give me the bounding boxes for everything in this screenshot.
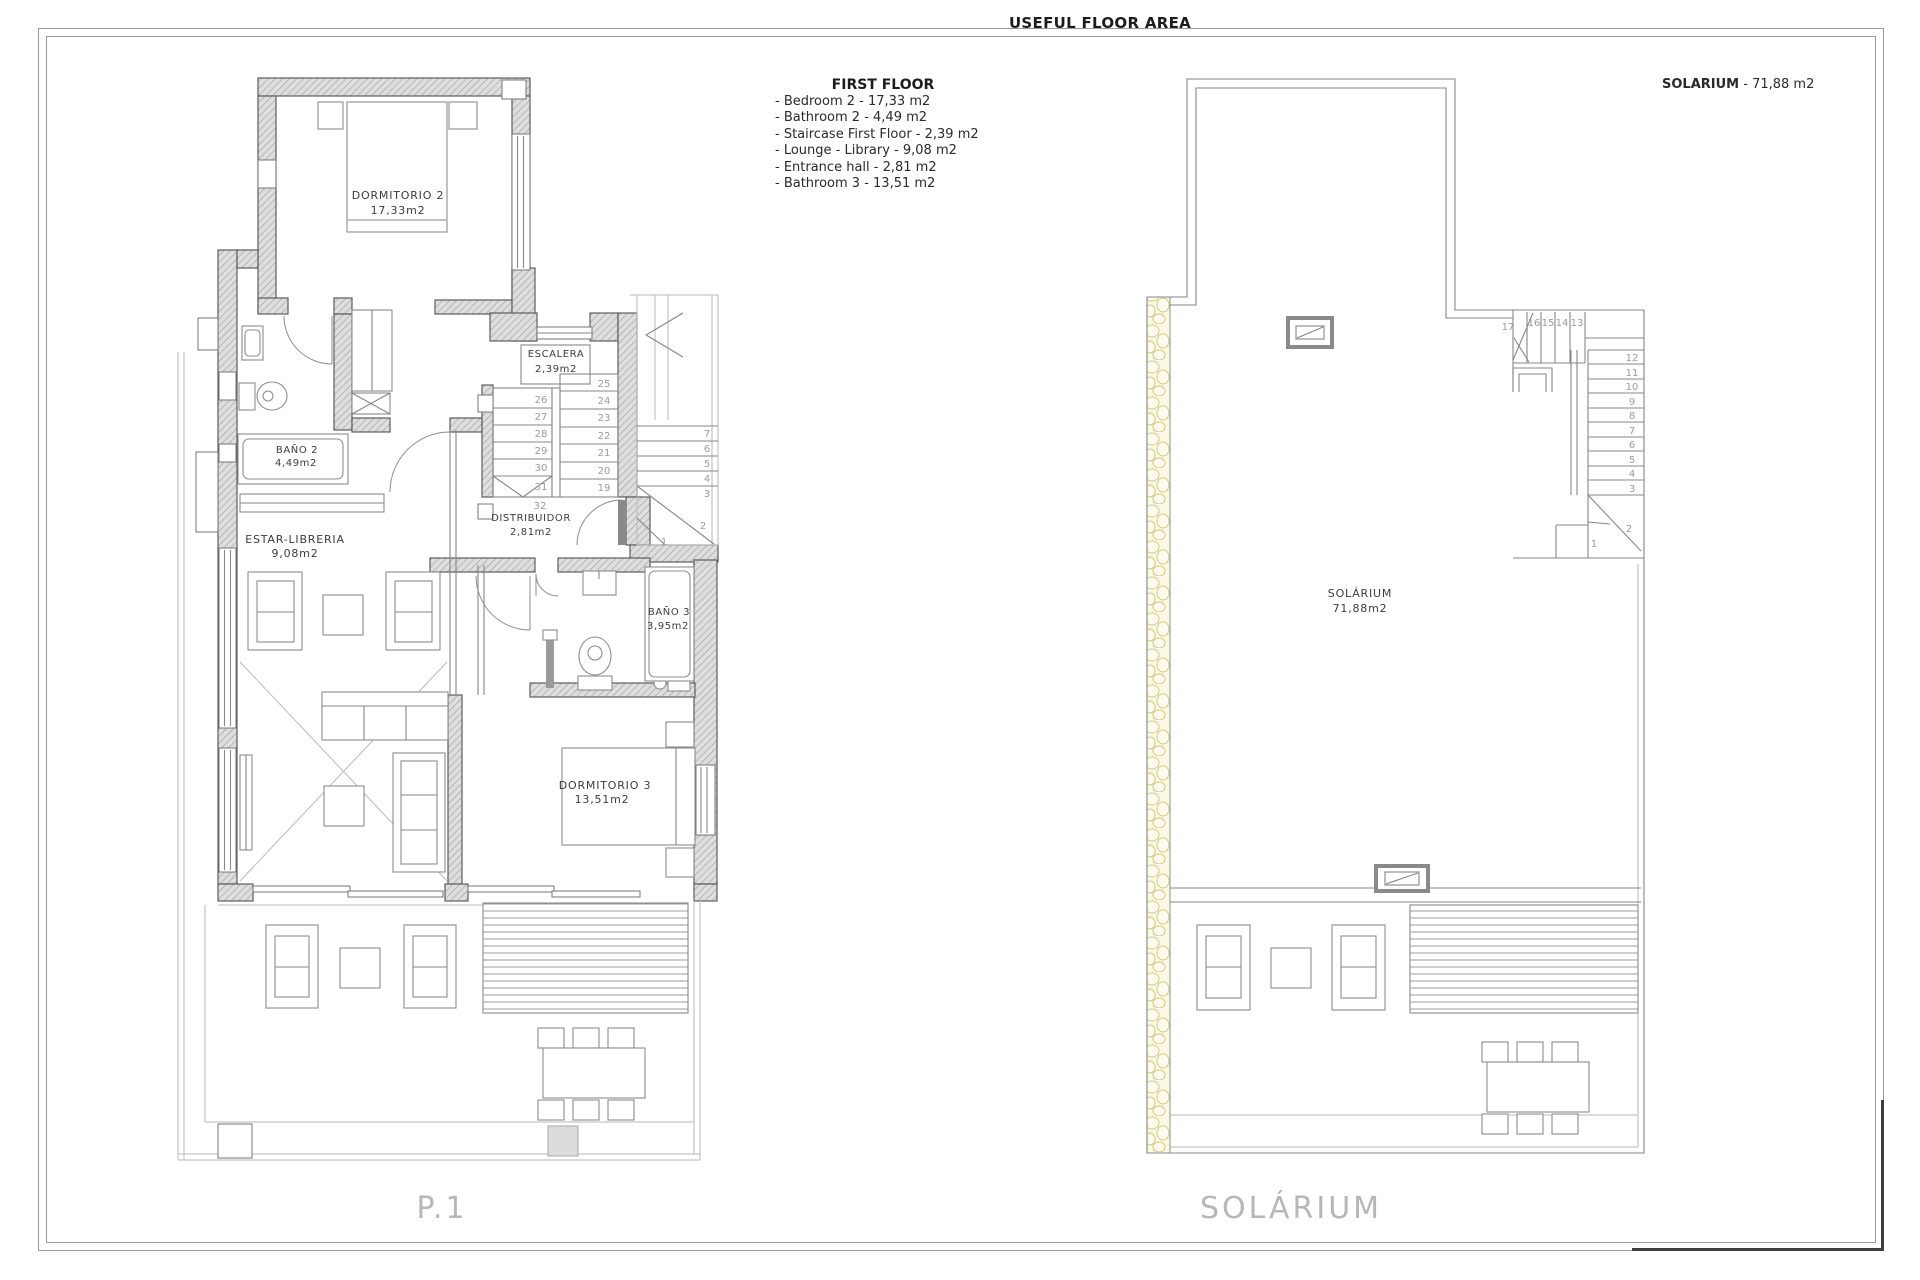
stair-number: 9 xyxy=(1629,397,1635,408)
plan-solarium: 17 16 15 14 13 12 11 10 9 8 7 6 5 4 3 2 … xyxy=(1147,79,1644,1226)
stair-number: 17 xyxy=(1502,322,1515,333)
stair-number: 2 xyxy=(700,521,706,532)
legend-item: - Bathroom 2 - 4,49 m2 xyxy=(775,110,979,126)
room-area: 13,51m2 xyxy=(575,793,630,806)
stair-number: 5 xyxy=(1629,455,1635,466)
stair-number: 31 xyxy=(535,482,548,493)
drawing-sheet: 26 27 28 29 30 31 25 24 23 22 21 20 19 3… xyxy=(0,0,1920,1280)
page-title: USEFUL FLOOR AREA xyxy=(1000,14,1200,32)
stair-number: 16 xyxy=(1528,318,1541,329)
stair-number: 29 xyxy=(535,446,548,457)
stair-number: 26 xyxy=(535,395,548,406)
skylight-top xyxy=(1288,318,1332,347)
room-name: ESCALERA xyxy=(528,349,585,360)
stair-number: 6 xyxy=(1629,440,1635,451)
room-name: DORMITORIO 2 xyxy=(352,189,445,202)
stair-number: 6 xyxy=(704,444,710,455)
stair-number: 21 xyxy=(598,448,611,459)
stair-number: 15 xyxy=(1542,318,1555,329)
solarium-note: SOLARIUM - 71,88 m2 xyxy=(1662,77,1814,92)
stair-number: 11 xyxy=(1626,368,1639,379)
legend-item: - Bedroom 2 - 17,33 m2 xyxy=(775,94,979,110)
room-area: 2,81m2 xyxy=(510,527,552,538)
stair-number: 2 xyxy=(1626,524,1632,535)
skylight-bottom xyxy=(1376,866,1428,891)
stair-number: 20 xyxy=(598,466,611,477)
stair-number: 4 xyxy=(704,474,710,485)
stair-number: 28 xyxy=(535,429,548,440)
plan-first-floor: 26 27 28 29 30 31 25 24 23 22 21 20 19 3… xyxy=(178,78,718,1226)
legend-item: - Staircase First Floor - 2,39 m2 xyxy=(775,127,979,143)
stair-number: 12 xyxy=(1626,353,1639,364)
entrance-door-leaf xyxy=(618,500,626,545)
terrace-box xyxy=(548,1126,578,1156)
room-labels: SOLÁRIUM 71,88m2 xyxy=(1328,587,1392,615)
room-area: 4,49m2 xyxy=(275,458,317,469)
stair-number: 1 xyxy=(1591,539,1597,550)
room-area: 71,88m2 xyxy=(1333,602,1388,615)
stair-number: 32 xyxy=(534,501,547,512)
legend-item: - Lounge - Library - 9,08 m2 xyxy=(775,143,979,159)
stair-number: 13 xyxy=(1571,318,1584,329)
room-name: DORMITORIO 3 xyxy=(559,779,652,792)
legend-title: FIRST FLOOR xyxy=(733,77,1033,93)
solarium-note-label: SOLARIUM xyxy=(1662,77,1739,92)
stair-number: 25 xyxy=(598,379,611,390)
stair-number: 3 xyxy=(704,489,710,500)
room-name: DISTRIBUIDOR xyxy=(491,513,571,524)
solarium-note-value: - 71,88 m2 xyxy=(1739,77,1814,92)
stair-number: 5 xyxy=(704,459,710,470)
room-name: SOLÁRIUM xyxy=(1328,587,1392,600)
deck-strips xyxy=(1410,905,1638,1013)
stair-number: 24 xyxy=(598,396,611,407)
deck-strips xyxy=(483,903,688,1013)
towel-radiator xyxy=(546,638,554,688)
room-area: 3,95m2 xyxy=(647,621,689,632)
stair-number: 14 xyxy=(1556,318,1569,329)
stair-number: 8 xyxy=(1629,411,1635,422)
plan2-caption: SOLÁRIUM xyxy=(1200,1190,1382,1226)
room-area: 17,33m2 xyxy=(371,204,426,217)
stone-wall xyxy=(1147,297,1170,1153)
legend-list: - Bedroom 2 - 17,33 m2 - Bathroom 2 - 4,… xyxy=(775,94,979,192)
legend-item: - Bathroom 3 - 13,51 m2 xyxy=(775,176,979,192)
room-area: 2,39m2 xyxy=(535,364,577,375)
page-frame xyxy=(39,29,1885,1251)
staircase-solarium: 17 16 15 14 13 12 11 10 9 8 7 6 5 4 3 2 … xyxy=(1502,310,1644,558)
stair-number: 7 xyxy=(1629,426,1635,437)
solarium-terrace xyxy=(1197,905,1638,1134)
room-area: 9,08m2 xyxy=(271,547,318,560)
stair-number: 23 xyxy=(598,413,611,424)
terrace xyxy=(178,901,700,1160)
stair-number: 30 xyxy=(535,463,548,474)
stair-number: 10 xyxy=(1626,382,1639,393)
legend-item: - Entrance hall - 2,81 m2 xyxy=(775,160,979,176)
stair-number: 19 xyxy=(598,483,611,494)
stair-number: 4 xyxy=(1629,469,1635,480)
room-name: BAÑO 3 xyxy=(648,605,690,618)
stair-number: 1 xyxy=(661,537,667,548)
room-name: ESTAR-LIBRERIA xyxy=(245,533,345,546)
plan1-caption: P.1 xyxy=(416,1191,467,1226)
stair-number: 22 xyxy=(598,431,611,442)
room-name: BAÑO 2 xyxy=(276,443,318,456)
stair-number: 27 xyxy=(535,412,548,423)
stair-number: 3 xyxy=(1629,484,1635,495)
stair-number: 7 xyxy=(704,429,710,440)
